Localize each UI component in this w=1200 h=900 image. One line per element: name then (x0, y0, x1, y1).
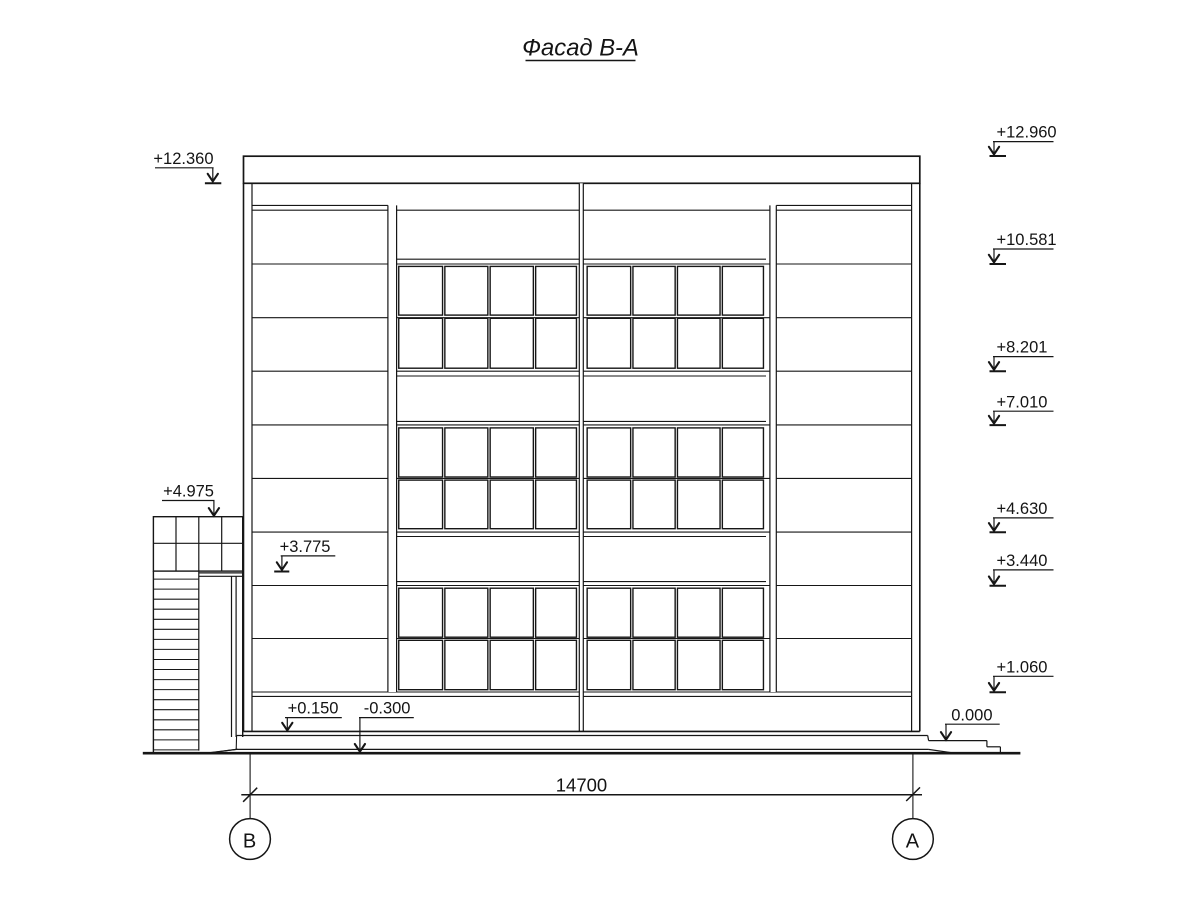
svg-text:В: В (243, 830, 256, 852)
svg-text:+0.150: +0.150 (288, 700, 339, 718)
svg-text:+4.975: +4.975 (163, 483, 214, 501)
svg-text:-0.300: -0.300 (364, 700, 411, 718)
svg-text:+12.960: +12.960 (997, 124, 1057, 142)
svg-text:+7.010: +7.010 (997, 393, 1048, 411)
svg-text:+12.360: +12.360 (153, 150, 213, 168)
svg-text:0.000: 0.000 (951, 706, 992, 724)
svg-text:+10.581: +10.581 (997, 231, 1057, 249)
svg-text:+3.440: +3.440 (997, 552, 1048, 570)
svg-text:+8.201: +8.201 (997, 339, 1048, 357)
svg-text:+4.630: +4.630 (997, 500, 1048, 518)
svg-text:Фасад В-А: Фасад В-А (522, 35, 639, 62)
svg-text:А: А (906, 830, 920, 852)
svg-text:+1.060: +1.060 (997, 658, 1048, 676)
svg-text:+3.775: +3.775 (280, 538, 331, 556)
svg-text:14700: 14700 (556, 774, 607, 795)
